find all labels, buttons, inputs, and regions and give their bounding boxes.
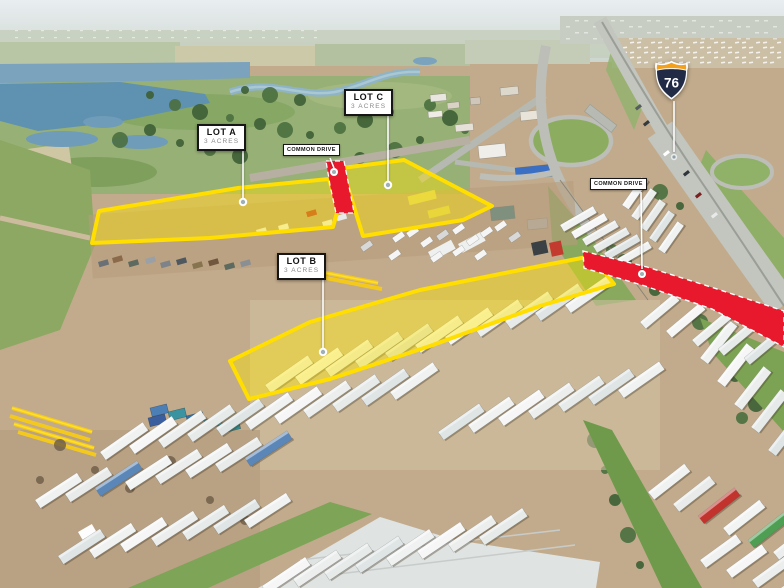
- lot-b-name: LOT B: [284, 257, 319, 266]
- common-drive-label-2: COMMON DRIVE: [590, 178, 647, 190]
- common-drive-label-1: COMMON DRIVE: [283, 144, 340, 156]
- lot-c-acreage: 3 ACRES: [351, 104, 386, 111]
- shield-number: 76: [664, 75, 680, 90]
- lot-a-label: LOT A 3 ACRES: [197, 124, 246, 151]
- lot-c-label: LOT C 3 ACRES: [344, 89, 393, 116]
- lot-b-acreage: 3 ACRES: [284, 268, 319, 275]
- lot-a-name: LOT A: [204, 128, 239, 137]
- horizon-haze: [0, 0, 784, 68]
- aerial-lot-marketing-photo: LOT A 3 ACRES LOT C 3 ACRES LOT B 3 ACRE…: [0, 0, 784, 588]
- interstate-76-shield: 76: [653, 60, 690, 101]
- grass-slope: [0, 140, 95, 350]
- lot-b-label: LOT B 3 ACRES: [277, 253, 326, 280]
- lot-c-name: LOT C: [351, 93, 386, 102]
- lot-a-acreage: 3 ACRES: [204, 139, 239, 146]
